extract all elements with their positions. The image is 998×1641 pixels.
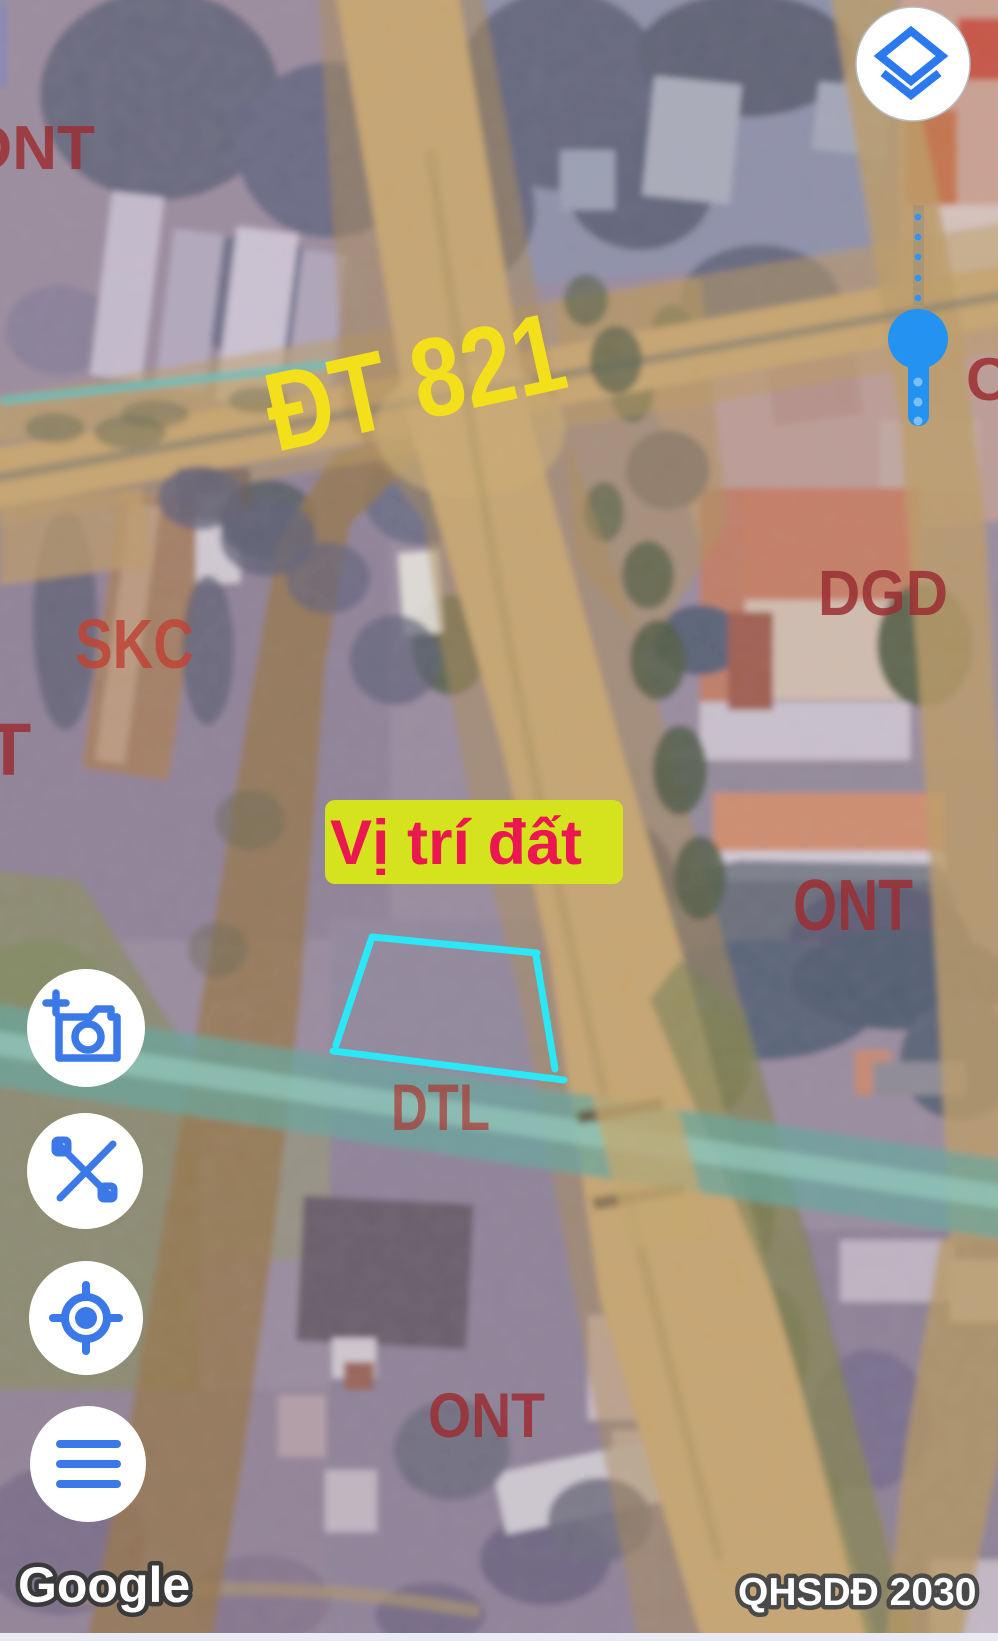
svg-text:SKC: SKC: [75, 605, 194, 683]
svg-text:QHSDĐ 2030: QHSDĐ 2030: [738, 1571, 976, 1614]
svg-text:ONT: ONT: [428, 1381, 545, 1451]
svg-text:ONT: ONT: [793, 866, 913, 946]
svg-text:Google: Google: [18, 1557, 190, 1613]
svg-text:ON: ON: [966, 346, 998, 413]
svg-text:ONT: ONT: [0, 114, 95, 183]
svg-text:Vị trí đất: Vị trí đất: [330, 808, 582, 878]
svg-text:DTL: DTL: [391, 1070, 490, 1144]
svg-text:DGD: DGD: [818, 557, 948, 629]
svg-text:T: T: [0, 708, 31, 791]
